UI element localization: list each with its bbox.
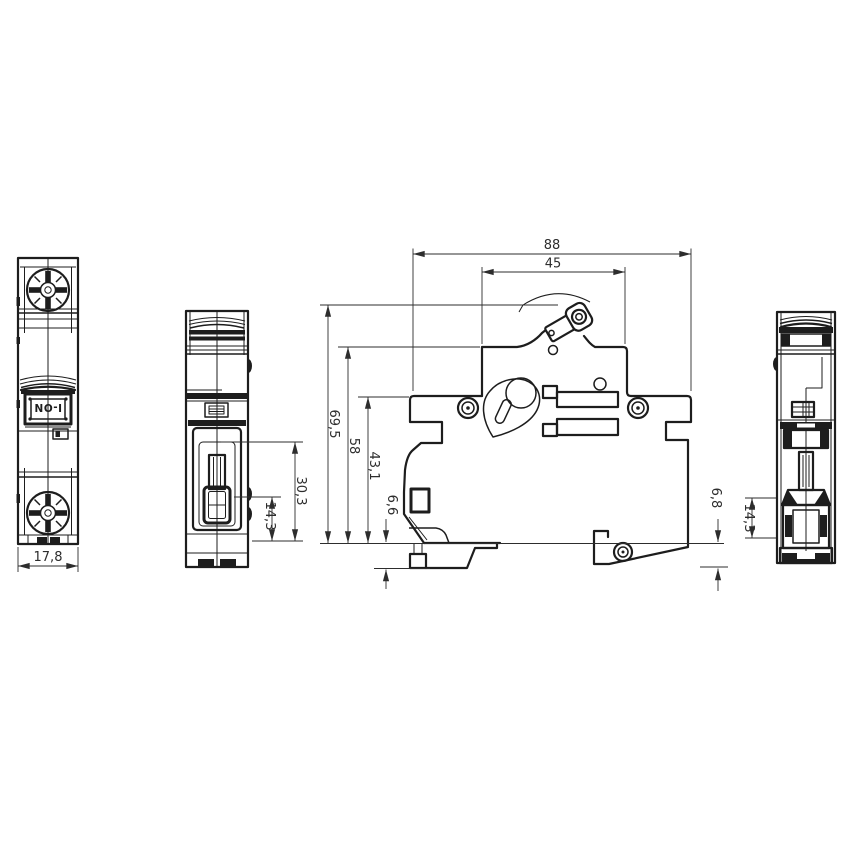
dim-17-8-label: 17,8 (34, 550, 63, 565)
busbar-tab-top (543, 386, 557, 398)
side-view-small (186, 311, 252, 567)
case-top-left (482, 329, 547, 396)
toggle-switch-front: I-ON (25, 394, 71, 424)
dim-58-label: 58 (346, 438, 361, 455)
circuit-breaker-drawing: I-ON (0, 0, 850, 850)
main-side-view (404, 294, 691, 568)
din-rail-clip (409, 517, 688, 568)
dim-6-8-label: 6,8 (708, 488, 723, 509)
dim-88-label: 88 (544, 238, 561, 253)
rear-side-view (248, 0, 835, 563)
dim-43-1-label: 43,1 (366, 452, 381, 481)
terminal-screw-bottom (27, 492, 69, 534)
dimension-6-6: 6,6 (374, 495, 430, 589)
side-mount-hole (411, 489, 429, 512)
busbar-slot-bottom (557, 419, 618, 435)
rivet-right (628, 398, 648, 418)
busbar-tab-bottom (543, 424, 557, 436)
dimension-43-1: 43,1 (358, 397, 409, 543)
dimension-58: 58 (338, 347, 480, 543)
dimensions: 88 45 69,5 58 4 (18, 238, 776, 591)
dim-69-5-label: 69,5 (326, 410, 341, 439)
dim-14-3-left-label: 14,3 (262, 502, 277, 531)
dim-45-label: 45 (545, 257, 562, 272)
dim-30-3-label: 30,3 (293, 477, 308, 506)
dimension-6-8: 6,8 (700, 488, 728, 591)
rear-latch-detail (792, 402, 814, 417)
front-view: I-ON (17, 258, 79, 544)
trip-cam (484, 378, 540, 437)
rivet-left (458, 398, 478, 418)
technical-drawing-page: I-ON (0, 0, 850, 850)
dim-14-3-right-label: 14,3 (741, 504, 756, 533)
vent-hole (594, 378, 606, 390)
terminal-screw-top (27, 269, 69, 311)
case-top-right (584, 336, 631, 396)
busbar-slot-top (557, 392, 618, 407)
dimension-17-8: 17,8 (18, 547, 78, 572)
dim-6-6-label: 6,6 (384, 495, 399, 516)
toggle-label: I-ON (34, 401, 62, 413)
dimension-14-3-right: 14,3 (741, 498, 776, 538)
dimension-69-5: 69,5 (320, 305, 558, 543)
